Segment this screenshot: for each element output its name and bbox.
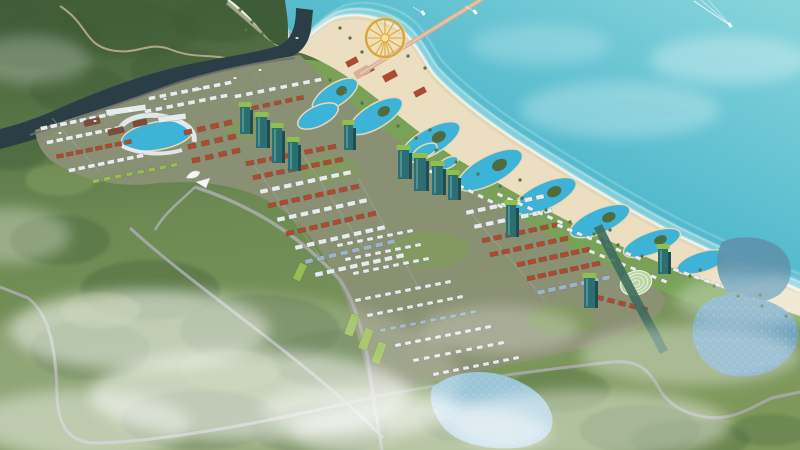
palm-tree-highlight xyxy=(239,9,240,10)
tower xyxy=(657,244,672,274)
palm-tree-highlight xyxy=(349,37,350,38)
mist-cloud xyxy=(420,306,580,354)
tower-glass-stripe xyxy=(258,118,260,146)
tower-glass-stripe xyxy=(400,151,402,177)
palm-tree-highlight xyxy=(261,33,262,34)
tower-body xyxy=(344,124,353,150)
tower-body xyxy=(658,248,668,274)
resort-aerial-rendering xyxy=(0,0,800,450)
palm-tree-highlight xyxy=(617,244,618,245)
tower-green-roof xyxy=(413,153,428,158)
tower-body xyxy=(432,165,443,195)
palm-tree-highlight xyxy=(455,161,456,162)
tower-shadow-side xyxy=(443,169,446,195)
tower-glass-stripe xyxy=(416,159,418,189)
palm-tree-highlight xyxy=(519,179,520,180)
tower-shadow-side xyxy=(668,252,671,274)
palm-tree-highlight xyxy=(379,113,380,114)
tower-shadow-side xyxy=(458,178,461,200)
river-sailboat xyxy=(94,120,97,122)
tower-body xyxy=(256,116,267,148)
palm-tree-highlight xyxy=(435,149,436,150)
tower-green-roof xyxy=(343,120,355,125)
palm-tree-highlight xyxy=(521,197,522,198)
tower-shadow-side xyxy=(250,110,253,134)
tower-green-roof xyxy=(447,170,460,175)
palm-tree-highlight xyxy=(593,233,594,234)
tower-shadow-side xyxy=(409,153,412,179)
tower-shadow-side xyxy=(516,208,519,237)
tower-body xyxy=(584,277,595,308)
palm-tree-highlight xyxy=(415,137,416,138)
tower-green-roof xyxy=(505,200,518,205)
palm-tree-highlight xyxy=(339,27,340,28)
palm-tree-highlight xyxy=(429,129,430,130)
mist-cloud xyxy=(580,325,800,385)
tower-shadow-side xyxy=(426,161,429,191)
palm-tree-highlight xyxy=(424,67,425,68)
mist-cloud xyxy=(520,82,720,138)
river-sailboat xyxy=(199,88,202,90)
palm-tree-highlight xyxy=(477,173,478,174)
tower xyxy=(447,170,462,200)
tower xyxy=(239,102,254,134)
tower-glass-stripe xyxy=(450,176,452,198)
tower-shadow-side xyxy=(267,120,270,148)
palm-tree-highlight xyxy=(407,55,408,56)
tower-glass-stripe xyxy=(434,167,436,193)
tower-shadow-side xyxy=(353,128,356,150)
tower-green-roof xyxy=(657,244,670,249)
tower-body xyxy=(240,106,250,134)
palm-tree-highlight xyxy=(699,269,700,270)
tower-green-roof xyxy=(431,161,445,166)
tower-green-roof xyxy=(239,102,252,107)
tower-body xyxy=(398,149,409,179)
tower-body xyxy=(448,174,458,200)
lawn-patch xyxy=(390,232,470,268)
river-sailboat xyxy=(234,77,237,79)
wheel-hub xyxy=(381,34,389,42)
river-sailboat xyxy=(129,109,132,111)
tower-body xyxy=(414,157,426,191)
palm-tree-highlight xyxy=(329,79,330,80)
tower-glass-stripe xyxy=(242,108,244,132)
palm-tree-highlight xyxy=(609,229,610,230)
tower-body xyxy=(506,204,516,237)
tower-green-roof xyxy=(271,123,284,128)
river-sailboat xyxy=(59,132,62,134)
palm-tree-highlight xyxy=(689,275,690,276)
tower-glass-stripe xyxy=(586,279,588,306)
palm-tree-highlight xyxy=(361,51,362,52)
tower-body xyxy=(288,141,298,171)
tower-shadow-side xyxy=(298,145,301,171)
palm-tree-highlight xyxy=(397,125,398,126)
tower-green-roof xyxy=(255,112,269,117)
tower-green-roof xyxy=(583,273,597,278)
palm-tree-highlight xyxy=(499,185,500,186)
palm-tree-highlight xyxy=(569,221,570,222)
palm-tree-highlight xyxy=(344,91,345,92)
tower-green-roof xyxy=(287,137,300,142)
palm-tree-highlight xyxy=(271,41,272,42)
tower-shadow-side xyxy=(282,131,285,163)
palm-tree-highlight xyxy=(245,29,246,30)
tower-shadow-side xyxy=(595,281,598,308)
tower-glass-stripe xyxy=(660,250,662,272)
aerial-render-stage xyxy=(0,0,800,450)
tower-glass-stripe xyxy=(508,206,510,235)
tower xyxy=(343,120,357,150)
river-sailboat xyxy=(296,37,299,39)
tower-glass-stripe xyxy=(274,129,276,161)
ferris-wheel xyxy=(364,17,406,59)
tower-glass-stripe xyxy=(346,126,348,148)
mist-cloud xyxy=(470,25,610,65)
river-sailboat xyxy=(259,69,262,71)
river-sailboat xyxy=(164,98,167,100)
tower-body xyxy=(272,127,282,163)
palm-tree-highlight xyxy=(545,209,546,210)
palm-tree-highlight xyxy=(641,255,642,256)
tower-green-roof xyxy=(397,145,411,150)
tower-glass-stripe xyxy=(290,143,292,169)
palm-tree-highlight xyxy=(361,102,362,103)
palm-tree-highlight xyxy=(665,265,666,266)
palm-tree-highlight xyxy=(251,21,252,22)
